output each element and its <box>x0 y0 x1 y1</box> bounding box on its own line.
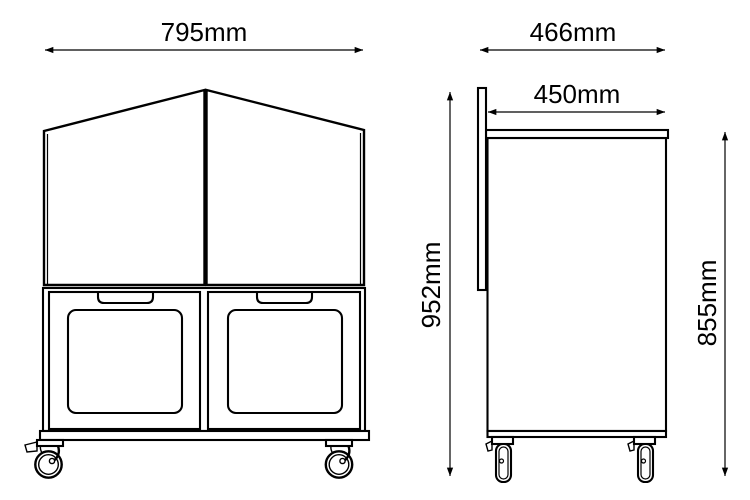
front-left-caster-wheel-inner <box>39 455 59 475</box>
side-height-overall-dimension-label: 952mm <box>416 242 446 329</box>
front-left-caster <box>25 440 63 478</box>
side-height-overall-dimension: 952mm <box>416 92 450 476</box>
front-width-dimension-label: 795mm <box>161 17 248 47</box>
front-width-dimension: 795mm <box>45 17 363 50</box>
front-right-caster-hub <box>340 458 345 463</box>
technical-drawing-canvas: 795mm <box>0 0 750 500</box>
side-front-caster-hub <box>500 459 504 463</box>
side-rear-caster-hub <box>642 459 646 463</box>
side-front-caster-wheel <box>496 444 511 482</box>
side-front-caster-plate <box>492 437 513 444</box>
side-depth-top-dimension: 450mm <box>488 79 665 112</box>
front-left-caster-hub <box>49 458 54 463</box>
side-body <box>488 138 667 431</box>
front-right-caster-wheel-inner <box>329 455 349 475</box>
side-view: 466mm 450mm 952mm <box>416 17 725 482</box>
side-depth-overall-dimension-label: 466mm <box>530 17 617 47</box>
side-rear-caster-wheel <box>638 444 653 482</box>
front-right-caster-plate <box>326 440 352 446</box>
side-height-body-dimension: 855mm <box>692 132 725 476</box>
front-right-door-panel <box>207 90 365 285</box>
side-depth-overall-dimension: 466mm <box>480 17 665 50</box>
side-top-surface <box>486 130 668 138</box>
front-left-caster-brake-lever <box>25 442 37 452</box>
side-back-panel <box>478 88 486 290</box>
front-right-caster <box>326 440 352 478</box>
side-rear-caster-plate <box>634 437 655 444</box>
side-depth-top-dimension-label: 450mm <box>534 79 621 109</box>
side-front-caster <box>486 437 513 482</box>
side-rear-caster <box>628 437 655 482</box>
front-left-caster-plate <box>37 440 63 446</box>
front-left-door-panel <box>44 90 205 285</box>
front-view: 795mm <box>25 17 369 478</box>
front-base-bar <box>40 431 369 440</box>
side-height-body-dimension-label: 855mm <box>692 260 722 347</box>
